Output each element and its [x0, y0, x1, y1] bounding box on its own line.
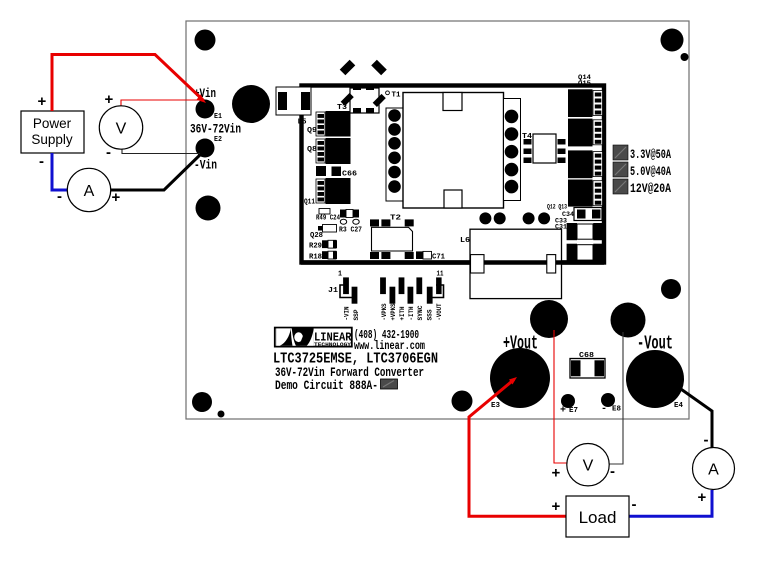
svg-text:T1: T1: [392, 92, 401, 100]
svg-text:E1: E1: [214, 113, 222, 121]
svg-text:-VOUT: -VOUT: [436, 303, 443, 320]
svg-text:A: A: [84, 183, 95, 200]
svg-text:-ITH: -ITH: [408, 306, 415, 320]
svg-text:-VIN: -VIN: [344, 306, 351, 320]
svg-text:SSP: SSP: [353, 309, 360, 320]
svg-text:+: +: [698, 489, 707, 506]
svg-text:L5: L5: [298, 119, 307, 127]
svg-text:+: +: [105, 91, 114, 108]
svg-text:-: -: [39, 153, 44, 170]
svg-text:Q8: Q8: [307, 146, 317, 154]
svg-text:E7: E7: [569, 407, 578, 415]
svg-text:Supply: Supply: [31, 132, 73, 147]
svg-text:36V-72Vin: 36V-72Vin: [190, 122, 241, 137]
svg-text:+: +: [560, 406, 566, 417]
svg-text:V: V: [116, 121, 127, 138]
svg-text:-VPKS: -VPKS: [381, 303, 388, 320]
svg-text:SSS: SSS: [427, 309, 434, 320]
svg-text:J1: J1: [328, 287, 339, 295]
svg-text:-: -: [601, 404, 607, 415]
svg-text:TECHNOLOGY: TECHNOLOGY: [314, 342, 351, 348]
svg-text:R3 C27: R3 C27: [339, 227, 362, 235]
svg-text:+ITH: +ITH: [399, 306, 406, 320]
svg-text:T4: T4: [522, 133, 532, 141]
svg-text:36V-72Vin Forward Converter: 36V-72Vin Forward Converter: [275, 366, 424, 380]
svg-text:Q28: Q28: [310, 232, 323, 240]
svg-text:E2: E2: [214, 136, 222, 144]
svg-text:-: -: [704, 432, 709, 449]
svg-text:+: +: [112, 189, 121, 206]
svg-text:Q12 Q13: Q12 Q13: [547, 204, 567, 211]
svg-text:SYNC: SYNC: [417, 305, 424, 320]
svg-text:C66: C66: [342, 171, 358, 179]
svg-text:Load: Load: [579, 508, 617, 527]
svg-text:Q11: Q11: [304, 199, 315, 207]
svg-text:-Vin: -Vin: [194, 158, 217, 173]
svg-text:-: -: [57, 188, 62, 205]
svg-text:-: -: [632, 496, 637, 513]
svg-text:C71: C71: [432, 253, 445, 261]
svg-text:Q15: Q15: [578, 80, 591, 87]
svg-text:11: 11: [437, 271, 444, 279]
svg-text:1: 1: [338, 271, 342, 279]
svg-text:T3: T3: [337, 104, 348, 112]
svg-text:5.0V@40A: 5.0V@40A: [630, 165, 671, 179]
svg-text:-: -: [610, 463, 615, 480]
svg-text:-: -: [106, 144, 111, 161]
svg-text:Power: Power: [33, 116, 72, 131]
svg-text:+: +: [552, 465, 561, 482]
svg-text:Demo Circuit 888A-: Demo Circuit 888A-: [275, 379, 378, 393]
svg-text:A: A: [708, 462, 719, 479]
svg-text:L6: L6: [460, 237, 471, 245]
svg-text:R49 C24: R49 C24: [316, 215, 340, 223]
svg-text:Q9: Q9: [307, 127, 317, 135]
svg-text:+VPKS: +VPKS: [390, 303, 397, 320]
svg-text:+: +: [38, 93, 47, 110]
svg-text:E3: E3: [491, 402, 500, 410]
svg-text:T2: T2: [390, 215, 402, 223]
svg-text:3.3V@50A: 3.3V@50A: [630, 148, 671, 162]
svg-text:+: +: [552, 498, 561, 515]
svg-text:R29: R29: [309, 243, 322, 251]
svg-text:12V@20A: 12V@20A: [630, 182, 671, 196]
svg-text:E8: E8: [612, 406, 621, 414]
svg-text:LTC3725EMSE, LTC3706EGN: LTC3725EMSE, LTC3706EGN: [273, 351, 438, 368]
svg-text:V: V: [583, 458, 594, 475]
svg-text:E4: E4: [674, 402, 683, 410]
